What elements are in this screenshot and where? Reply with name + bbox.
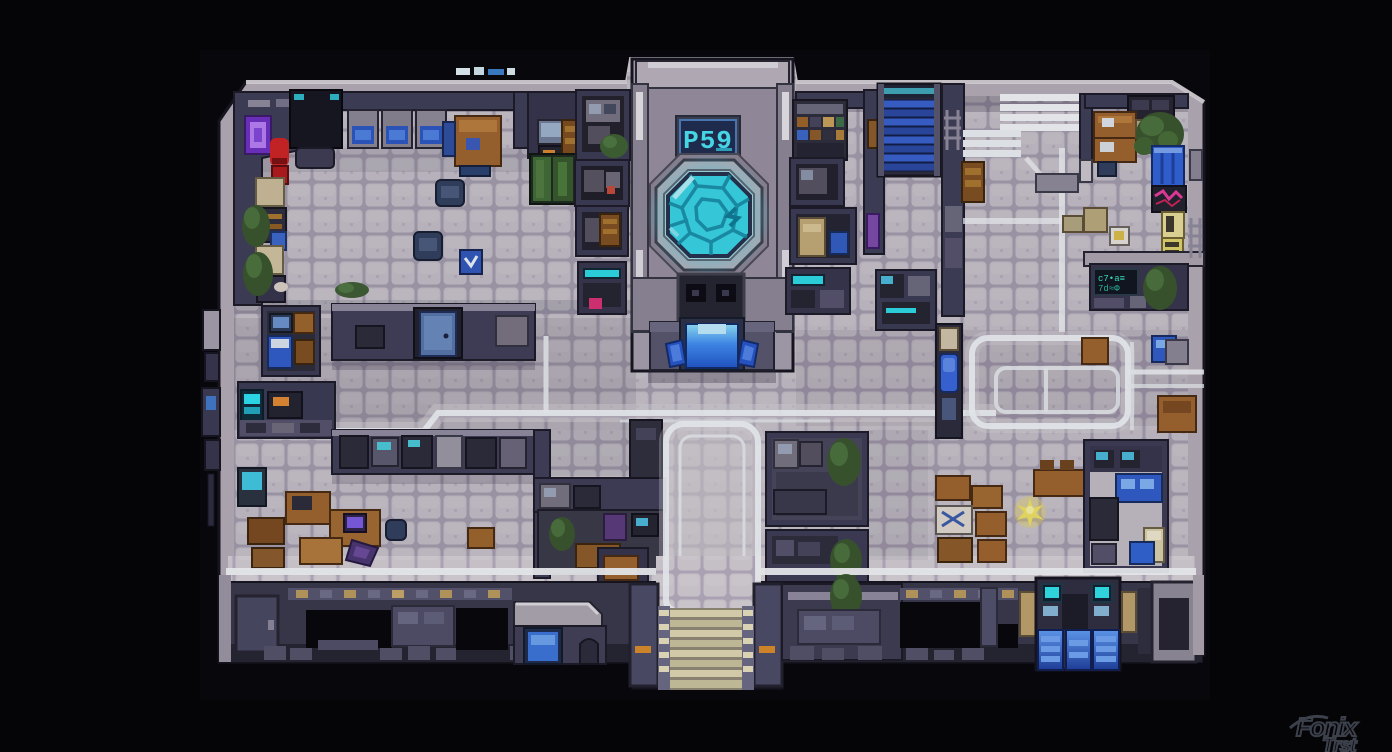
svg-text:Trst: Trst	[1322, 735, 1358, 752]
